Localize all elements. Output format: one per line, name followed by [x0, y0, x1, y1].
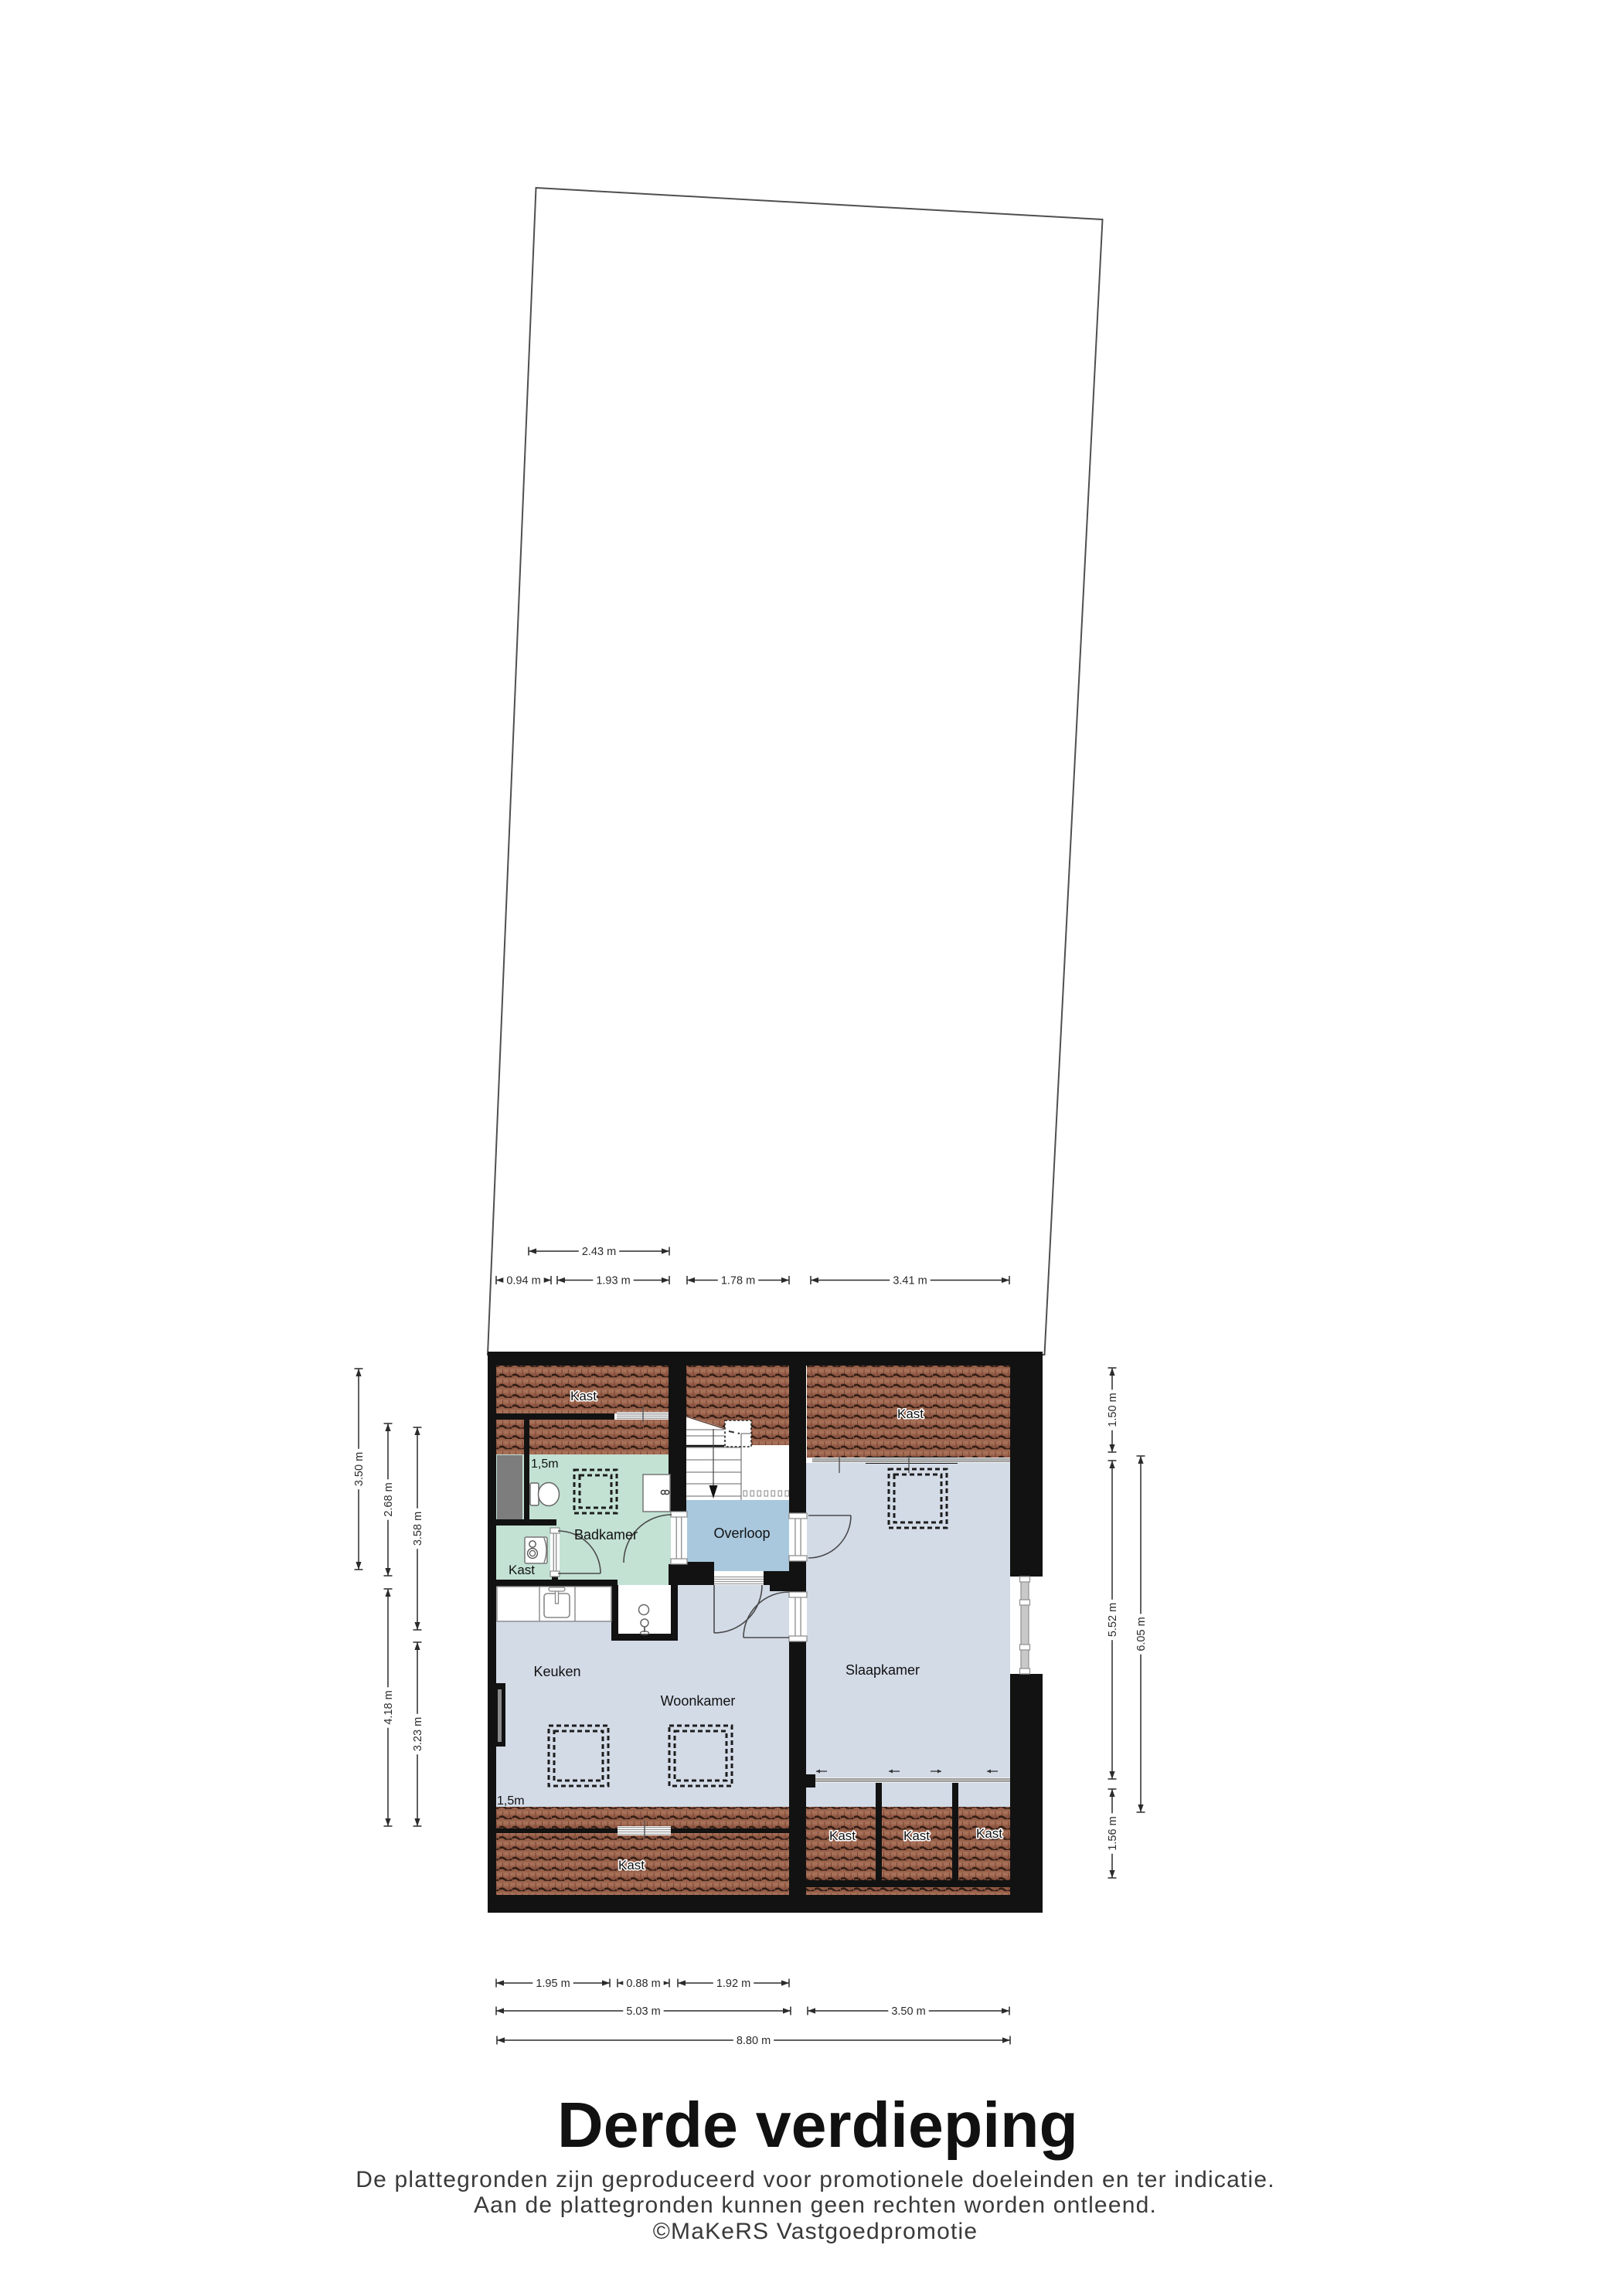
svg-text:1.56 m: 1.56 m [1107, 1816, 1119, 1850]
svg-text:Keuken: Keuken [533, 1664, 580, 1679]
svg-text:3.50 m: 3.50 m [353, 1452, 366, 1486]
svg-text:Badkamer: Badkamer [574, 1527, 638, 1543]
svg-text:3.23 m: 3.23 m [412, 1717, 424, 1751]
svg-text:8.80 m: 8.80 m [737, 2035, 771, 2047]
svg-text:Kast: Kast [509, 1563, 535, 1577]
svg-text:2.68 m: 2.68 m [383, 1482, 395, 1516]
svg-text:Slaapkamer: Slaapkamer [846, 1662, 920, 1678]
svg-text:1.95 m: 1.95 m [536, 1978, 570, 1990]
svg-text:5.52 m: 5.52 m [1107, 1603, 1119, 1637]
svg-text:6.05 m: 6.05 m [1135, 1617, 1148, 1651]
svg-text:Kast: Kast [897, 1407, 924, 1421]
svg-text:Woonkamer: Woonkamer [661, 1693, 736, 1709]
svg-text:1.50 m: 1.50 m [1107, 1393, 1119, 1427]
svg-text:Kast: Kast [570, 1389, 597, 1403]
svg-text:Kast: Kast [903, 1828, 930, 1843]
svg-text:Derde verdieping: Derde verdieping [557, 2090, 1078, 2161]
svg-text:©MaKeRS Vastgoedpromotie: ©MaKeRS Vastgoedpromotie [653, 2219, 978, 2244]
svg-text:3.58 m: 3.58 m [412, 1512, 424, 1546]
svg-text:1,5m: 1,5m [531, 1458, 559, 1471]
svg-text:Kast: Kast [976, 1826, 1002, 1841]
svg-text:Kast: Kast [618, 1858, 645, 1873]
svg-text:3.41 m: 3.41 m [893, 1275, 927, 1287]
svg-text:4.18 m: 4.18 m [383, 1690, 395, 1724]
svg-text:Overloop: Overloop [713, 1526, 770, 1541]
svg-text:0.88 m: 0.88 m [626, 1978, 660, 1990]
svg-text:1.92 m: 1.92 m [716, 1978, 750, 1990]
svg-text:0.94 m: 0.94 m [506, 1275, 540, 1287]
svg-text:1.78 m: 1.78 m [721, 1275, 755, 1287]
svg-text:5.03 m: 5.03 m [626, 2005, 660, 2018]
svg-text:1,5m: 1,5m [497, 1794, 525, 1808]
svg-text:3.50 m: 3.50 m [891, 2005, 925, 2018]
svg-text:Kast: Kast [829, 1828, 856, 1843]
svg-text:1.93 m: 1.93 m [596, 1275, 630, 1287]
svg-text:Aan de plattegronden kunnen ge: Aan de plattegronden kunnen geen rechten… [474, 2192, 1157, 2218]
svg-text:De plattegronden zijn geproduc: De plattegronden zijn geproduceerd voor … [356, 2167, 1275, 2192]
svg-text:2.43 m: 2.43 m [582, 1246, 616, 1258]
